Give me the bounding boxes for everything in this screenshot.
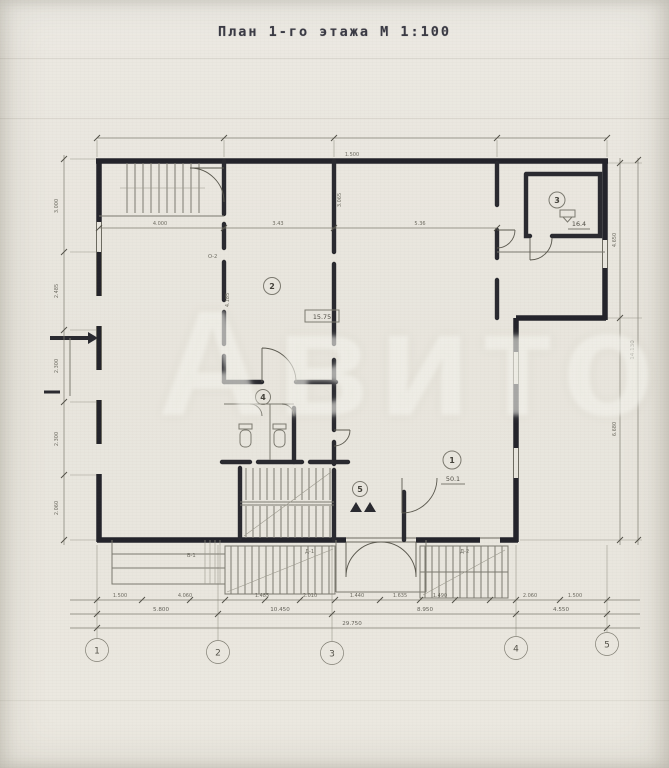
axis-circle-1: 1 bbox=[86, 639, 109, 662]
paper-crease bbox=[0, 700, 669, 701]
entrance-porch-center bbox=[336, 540, 426, 592]
svg-text:1.500: 1.500 bbox=[568, 593, 582, 599]
room-number-lobby: 4 bbox=[256, 390, 271, 405]
svg-text:3.43: 3.43 bbox=[272, 221, 283, 227]
svg-text:Д-1: Д-1 bbox=[305, 549, 314, 555]
svg-text:1: 1 bbox=[94, 647, 100, 657]
dimension-lines bbox=[61, 135, 641, 631]
svg-text:15.75: 15.75 bbox=[313, 313, 331, 321]
svg-text:1.500: 1.500 bbox=[113, 593, 127, 599]
porch-left bbox=[112, 540, 225, 584]
toilet-fixtures bbox=[239, 210, 575, 447]
svg-text:10.450: 10.450 bbox=[270, 607, 290, 613]
svg-text:5.36: 5.36 bbox=[414, 221, 425, 227]
svg-text:5: 5 bbox=[604, 641, 610, 651]
svg-text:3.065: 3.065 bbox=[337, 193, 343, 207]
svg-text:1: 1 bbox=[449, 456, 455, 465]
svg-text:2.300: 2.300 bbox=[54, 359, 60, 373]
svg-text:4.060: 4.060 bbox=[178, 593, 192, 599]
svg-text:1.500: 1.500 bbox=[345, 152, 359, 158]
svg-text:1.485: 1.485 bbox=[255, 593, 269, 599]
paper-crease bbox=[0, 58, 669, 59]
floorplan-drawing: 4.000 3.43 5.36 1.500 3.065 4.185 1.500 … bbox=[0, 0, 669, 768]
svg-text:16.4: 16.4 bbox=[572, 220, 586, 228]
svg-text:В-1: В-1 bbox=[187, 553, 196, 559]
svg-text:4.000: 4.000 bbox=[153, 221, 167, 227]
svg-text:1.490: 1.490 bbox=[433, 593, 447, 599]
interior-walls bbox=[99, 161, 605, 540]
svg-text:4.550: 4.550 bbox=[553, 607, 569, 613]
svg-text:О-2: О-2 bbox=[208, 254, 217, 260]
svg-text:2.485: 2.485 bbox=[54, 284, 60, 298]
svg-text:1.635: 1.635 bbox=[393, 593, 407, 599]
staircase-exterior-center bbox=[225, 546, 335, 594]
svg-text:8.950: 8.950 bbox=[417, 607, 433, 613]
svg-text:50.1: 50.1 bbox=[446, 475, 460, 483]
svg-text:3.000: 3.000 bbox=[54, 199, 60, 213]
axis-grid-bubbles: 1 2 3 4 5 bbox=[86, 633, 619, 665]
svg-text:3: 3 bbox=[329, 650, 335, 660]
svg-text:4.185: 4.185 bbox=[225, 293, 231, 307]
window-symbols bbox=[97, 222, 608, 542]
svg-text:2.300: 2.300 bbox=[54, 432, 60, 446]
svg-text:5.800: 5.800 bbox=[153, 607, 169, 613]
axis-circle-5: 5 bbox=[596, 633, 619, 656]
axis-circle-2: 2 bbox=[207, 641, 230, 664]
svg-text:14.130: 14.130 bbox=[630, 340, 636, 360]
svg-text:Д-2: Д-2 bbox=[460, 549, 469, 555]
svg-text:29.750: 29.750 bbox=[342, 621, 362, 627]
entrance-arrow-icon bbox=[350, 502, 376, 512]
extension-lines bbox=[70, 140, 642, 641]
svg-text:5: 5 bbox=[357, 485, 363, 494]
staircase-top-left bbox=[120, 163, 205, 213]
paper-crease bbox=[0, 118, 669, 119]
room-labels: 2 15.75 1 50.1 3 16.4 4 5 bbox=[256, 192, 591, 497]
svg-text:2.060: 2.060 bbox=[523, 593, 537, 599]
svg-text:4: 4 bbox=[260, 393, 266, 402]
svg-text:1.440: 1.440 bbox=[350, 593, 364, 599]
svg-text:2.060: 2.060 bbox=[54, 501, 60, 515]
svg-text:6.680: 6.680 bbox=[612, 422, 618, 436]
svg-text:2: 2 bbox=[269, 282, 275, 291]
dimension-texts: 4.000 3.43 5.36 1.500 3.065 4.185 1.500 … bbox=[54, 152, 636, 627]
section-mark bbox=[44, 332, 98, 396]
svg-text:2.010: 2.010 bbox=[303, 593, 317, 599]
room-number-main: 1 50.1 bbox=[441, 451, 465, 484]
room-number-hall: 2 15.75 bbox=[264, 278, 340, 323]
axis-circle-3: 3 bbox=[321, 642, 344, 665]
svg-text:2: 2 bbox=[215, 649, 221, 659]
scanned-floorplan-page: План 1-го этажа М 1:100 Авито bbox=[0, 0, 669, 768]
svg-text:4: 4 bbox=[513, 645, 519, 655]
page-title: План 1-го этажа М 1:100 bbox=[0, 24, 669, 40]
svg-text:4.650: 4.650 bbox=[612, 233, 618, 247]
room-number-stair: 5 bbox=[353, 482, 368, 497]
axis-circle-4: 4 bbox=[505, 637, 528, 660]
sink-fixture bbox=[560, 210, 575, 217]
staircase-central bbox=[240, 468, 334, 538]
svg-text:3: 3 bbox=[554, 196, 560, 205]
